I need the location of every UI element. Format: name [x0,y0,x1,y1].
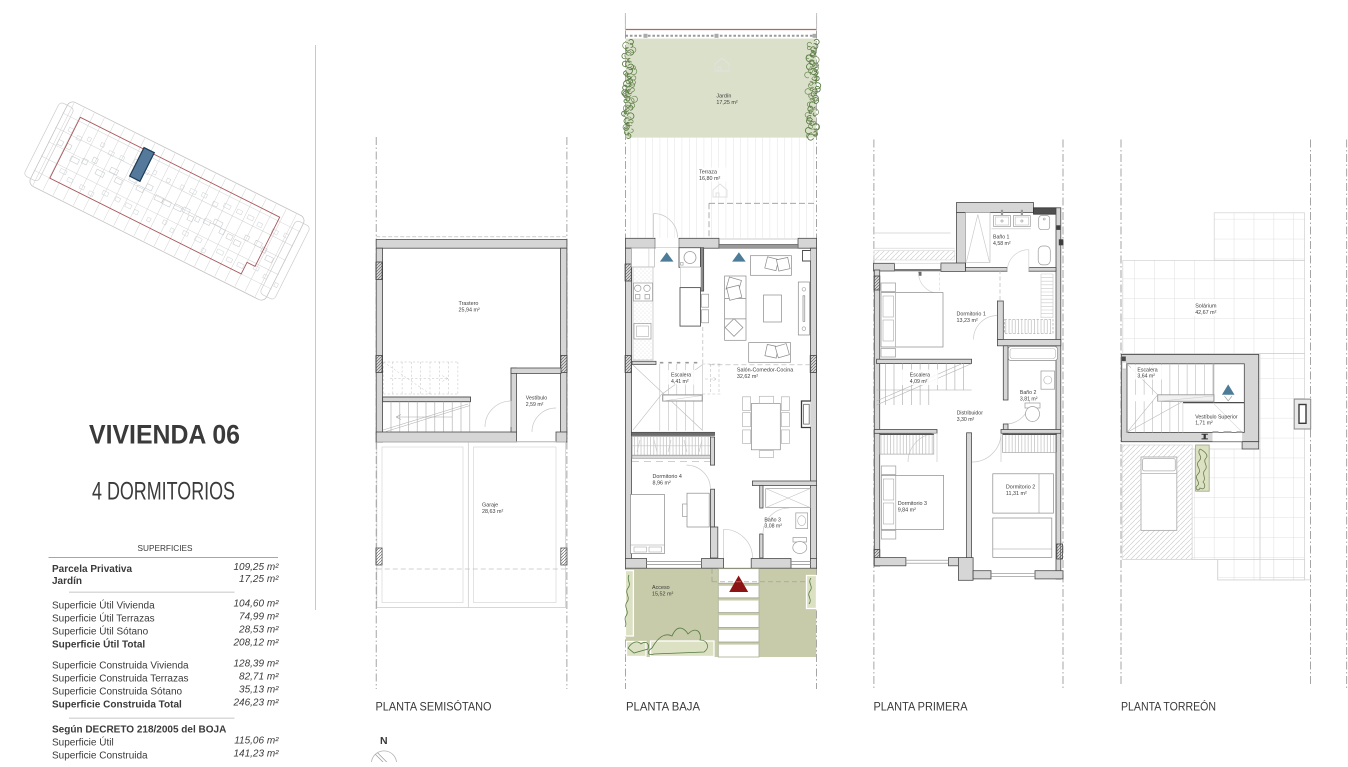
svg-text:9,84 m²: 9,84 m² [898,508,916,514]
svg-text:Superficie Construida Vivienda: Superficie Construida Vivienda [52,661,189,672]
svg-text:74,99 m²: 74,99 m² [239,612,279,623]
svg-text:Superficie Construida Sótano: Superficie Construida Sótano [52,686,183,697]
svg-text:Jardín: Jardín [52,576,82,587]
svg-text:N: N [380,735,388,747]
svg-text:Superficie Útil Vivienda: Superficie Útil Vivienda [52,599,155,612]
svg-text:104,60 m²: 104,60 m² [233,599,279,610]
svg-text:Superficie Útil: Superficie Útil [52,736,114,749]
svg-text:Parcela Privativa: Parcela Privativa [52,564,132,575]
svg-text:13,23 m²: 13,23 m² [957,318,978,324]
svg-text:Baño 2: Baño 2 [1020,390,1037,396]
svg-text:25,94 m²: 25,94 m² [459,308,480,314]
svg-text:11,31 m²: 11,31 m² [1006,491,1027,497]
svg-text:Dormitorio 4: Dormitorio 4 [653,474,682,480]
svg-text:VIVIENDA 06: VIVIENDA 06 [89,420,240,450]
svg-text:Superficie Útil Total: Superficie Útil Total [52,638,145,651]
svg-text:16,80 m²: 16,80 m² [699,176,720,182]
svg-text:42,67 m²: 42,67 m² [1195,310,1216,316]
svg-text:Escalera: Escalera [671,373,691,379]
svg-text:32,62 m²: 32,62 m² [737,374,758,380]
svg-text:Superficie Útil Sótano: Superficie Útil Sótano [52,625,149,638]
svg-text:17,25 m²: 17,25 m² [716,100,737,106]
svg-text:4,09 m²: 4,09 m² [910,379,928,385]
svg-text:Vestíbulo: Vestíbulo [526,396,547,402]
svg-text:8,96 m²: 8,96 m² [653,481,671,487]
svg-text:Salón-Comedor-Cocina: Salón-Comedor-Cocina [737,368,793,374]
svg-text:246,23 m²: 246,23 m² [232,698,279,709]
svg-text:Dormitorio 3: Dormitorio 3 [898,501,927,507]
svg-text:4,58 m²: 4,58 m² [993,241,1011,247]
svg-text:PLANTA TORREÓN: PLANTA TORREÓN [1121,699,1216,714]
svg-text:115,06 m²: 115,06 m² [234,736,279,747]
svg-text:PLANTA BAJA: PLANTA BAJA [626,700,701,714]
svg-text:35,13 m²: 35,13 m² [239,684,279,695]
svg-text:Según DECRETO 218/2005 del BOJ: Según DECRETO 218/2005 del BOJA [52,725,226,736]
svg-text:141,23 m²: 141,23 m² [233,748,279,759]
svg-text:Superficie Construida Total: Superficie Construida Total [52,700,182,711]
svg-text:Superficie Construida Terrazas: Superficie Construida Terrazas [52,674,189,685]
svg-text:28,63 m²: 28,63 m² [482,509,503,515]
svg-text:Baño 1: Baño 1 [993,235,1010,241]
svg-text:Dormitorio 1: Dormitorio 1 [957,312,986,318]
svg-text:Dormitorio 2: Dormitorio 2 [1006,485,1035,491]
svg-text:PLANTA PRIMERA: PLANTA PRIMERA [874,700,969,714]
svg-text:Acceso: Acceso [652,585,670,591]
svg-text:82,71 m²: 82,71 m² [239,672,279,683]
svg-text:Escalera: Escalera [910,373,930,379]
svg-text:Terraza: Terraza [699,170,717,176]
svg-text:PLANTA SEMISÓTANO: PLANTA SEMISÓTANO [376,699,492,714]
svg-text:Superficie Construida: Superficie Construida [52,750,148,761]
svg-text:15,52 m²: 15,52 m² [652,592,673,598]
svg-text:2,59 m²: 2,59 m² [526,402,544,408]
svg-text:109,25 m²: 109,25 m² [233,562,279,573]
svg-text:28,53 m²: 28,53 m² [238,625,279,636]
svg-text:1,71 m²: 1,71 m² [1195,420,1213,426]
svg-text:Jardín: Jardín [716,94,731,100]
svg-text:SUPERFICIES: SUPERFICIES [138,543,193,553]
svg-text:3,08 m²: 3,08 m² [764,524,782,530]
svg-text:3,30 m²: 3,30 m² [957,417,975,423]
svg-text:Distribuidor: Distribuidor [957,411,984,417]
svg-text:Solárium: Solárium [1195,304,1217,310]
svg-text:128,39 m²: 128,39 m² [233,659,279,670]
svg-text:3,64 m²: 3,64 m² [1137,374,1155,380]
svg-text:208,12 m²: 208,12 m² [232,638,279,649]
svg-text:4 DORMITORIOS: 4 DORMITORIOS [92,478,235,506]
svg-text:17,25 m²: 17,25 m² [239,574,279,585]
svg-text:4,41 m²: 4,41 m² [671,379,689,385]
svg-text:Garaje: Garaje [482,503,498,509]
svg-text:3,81 m²: 3,81 m² [1020,397,1038,403]
svg-text:Superficie Útil Terrazas: Superficie Útil Terrazas [52,612,155,625]
svg-text:Trastero: Trastero [459,301,479,307]
